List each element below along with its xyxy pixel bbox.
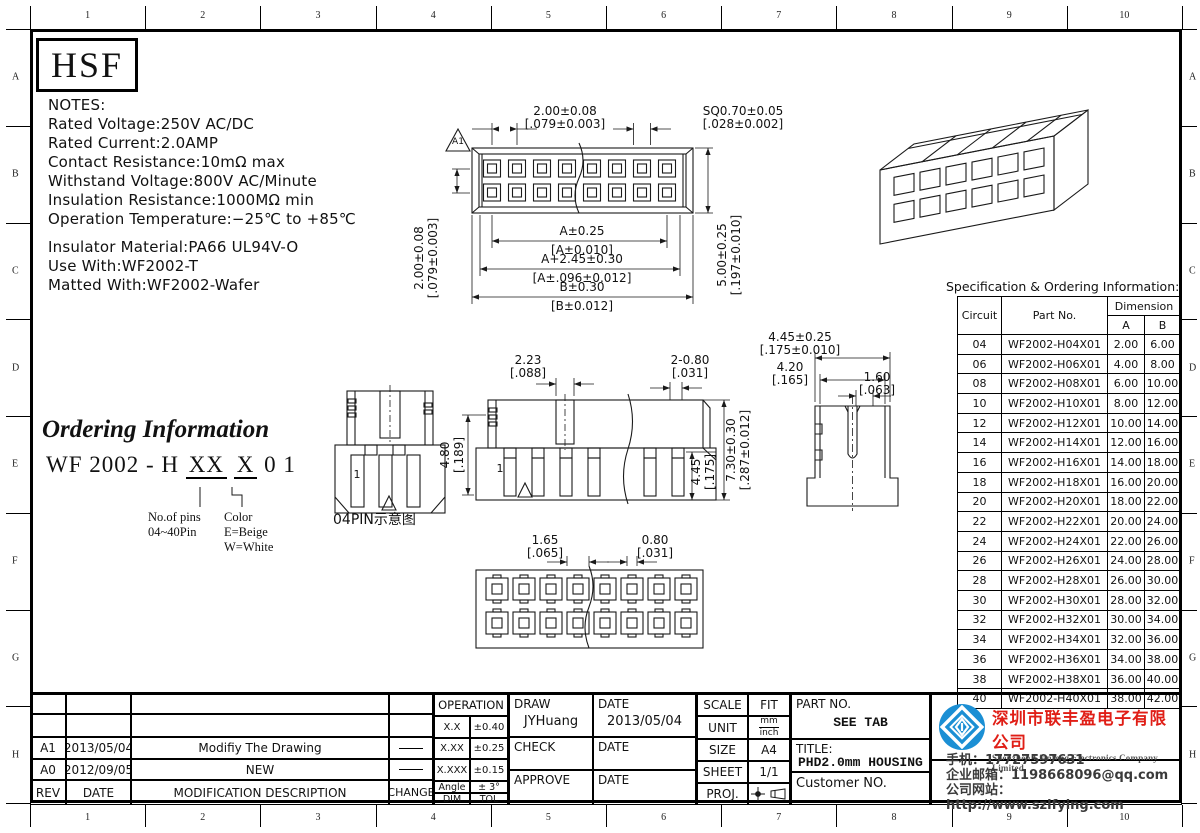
rev-a0: A0 — [30, 759, 66, 780]
border-tick — [606, 805, 607, 827]
spec-table-cell: 18 — [958, 472, 1002, 492]
border-tick — [6, 803, 30, 804]
spec-table-cell: 14.00 — [1108, 453, 1145, 473]
border-number-top: 7 — [776, 10, 781, 21]
notes-block: NOTES: Rated Voltage:250V AC/DCRated Cur… — [48, 96, 356, 295]
rev-header-date: DATE — [66, 780, 131, 805]
spec-table-cell: 16.00 — [1108, 472, 1145, 492]
spec-table-cell: WF2002-H38X01 — [1002, 669, 1108, 689]
spec-col-a: A — [1108, 316, 1145, 335]
spec-table-cell: WF2002-H32X01 — [1002, 610, 1108, 630]
company-website: 公司网站：http://www.szlfying.com — [946, 783, 1181, 813]
border-number-top: 10 — [1119, 10, 1129, 21]
spec-table-cell: 22.00 — [1108, 531, 1145, 551]
spec-table-row: 16WF2002-H16X0114.0018.00 — [958, 453, 1181, 473]
border-tick — [1182, 803, 1197, 804]
border-letter-right: A — [1189, 72, 1196, 83]
spec-table-row: 26WF2002-H26X0124.0028.00 — [958, 551, 1181, 571]
rev-a0-date: 2012/09/05 — [66, 759, 131, 780]
check-cell: CHECK — [508, 737, 593, 770]
spec-table-cell: 24.00 — [1145, 512, 1181, 532]
border-tick — [1182, 416, 1197, 417]
note-line: Withstand Voltage:800V AC/Minute — [48, 172, 356, 191]
border-tick — [1182, 513, 1197, 514]
spec-table-cell: 12.00 — [1145, 394, 1181, 414]
border-tick — [6, 513, 30, 514]
border-tick — [6, 416, 30, 417]
spec-table-cell: 26.00 — [1108, 571, 1145, 591]
spec-table-cell: WF2002-H06X01 — [1002, 354, 1108, 374]
proj-label: PROJ. — [696, 783, 748, 805]
border-number-bottom: 2 — [200, 812, 205, 823]
size-value: A4 — [748, 739, 790, 761]
spec-table-cell: 16 — [958, 453, 1002, 473]
spec-table-cell: 30.00 — [1145, 571, 1181, 591]
spec-table-cell: 8.00 — [1108, 394, 1145, 414]
border-number-bottom: 7 — [776, 812, 781, 823]
spec-table-cell: 06 — [958, 354, 1002, 374]
dim-side-2080: 2-0.80[.031] — [671, 354, 710, 380]
border-tick — [1182, 319, 1197, 320]
border-letter-left: B — [12, 169, 19, 180]
unit-value: mminch — [748, 716, 790, 739]
notes-lines: Rated Voltage:250V AC/DCRated Current:2.… — [48, 115, 356, 229]
tol-xxx: X.XX — [433, 738, 470, 759]
border-number-top: 2 — [200, 10, 205, 21]
spec-table-cell: 32.00 — [1108, 630, 1145, 650]
sheet-label: SHEET — [696, 761, 748, 783]
border-letter-left: H — [12, 749, 19, 760]
note-line: Insulation Resistance:1000MΩ min — [48, 191, 356, 210]
spec-table-row: 20WF2002-H20X0118.0022.00 — [958, 492, 1181, 512]
dim-front-row-pitch: 2.00±0.08[.079±0.003] — [412, 218, 440, 299]
caption-04pin: 04PIN示意图 — [333, 509, 416, 529]
spec-col-dimension: Dimension — [1108, 297, 1181, 316]
spec-table-cell: 26.00 — [1145, 531, 1181, 551]
border-tick — [1182, 223, 1197, 224]
tol-xxx-val: ±0.25 — [470, 738, 508, 759]
border-number-bottom: 3 — [316, 812, 321, 823]
spec-table-row: 12WF2002-H12X0110.0014.00 — [958, 413, 1181, 433]
tol-tol: TOL — [470, 793, 508, 805]
border-number-bottom: 9 — [1007, 812, 1012, 823]
border-tick — [491, 6, 492, 29]
spec-table-cell: 20.00 — [1108, 512, 1145, 532]
border-number-top: 8 — [892, 10, 897, 21]
check-date-cell: DATE — [593, 737, 696, 770]
spec-table-cell: 8.00 — [1145, 354, 1181, 374]
change-line — [399, 748, 423, 749]
spec-table-cell: WF2002-H18X01 — [1002, 472, 1108, 492]
spec-table-cell: 10 — [958, 394, 1002, 414]
border-tick — [491, 805, 492, 827]
drawing-sheet: 1122334455667788991010AABBCCDDEEFFGGHH H… — [0, 0, 1200, 833]
ordering-information-title: Ordering Information — [42, 416, 269, 444]
revision-flag: A1 — [452, 136, 464, 149]
title-cell: TITLE: PHD2.0mm HOUSING — [790, 739, 930, 772]
customer-cell: Customer NO. — [790, 772, 930, 805]
border-tick — [30, 6, 31, 29]
dim-end-420: 4.20[.165] — [772, 361, 808, 387]
border-number-bottom: 4 — [431, 812, 436, 823]
spec-table-cell: WF2002-H10X01 — [1002, 394, 1108, 414]
spec-table-cell: 26 — [958, 551, 1002, 571]
tol-xx: X.X — [433, 716, 470, 738]
border-letter-right: D — [1189, 362, 1196, 373]
rear-view-drawing — [458, 526, 723, 661]
draw-date-cell: DATE2013/05/04 — [593, 694, 696, 737]
spec-table-row: 36WF2002-H36X0134.0038.00 — [958, 650, 1181, 670]
spec-table-cell: 36.00 — [1108, 669, 1145, 689]
border-number-top: 3 — [316, 10, 321, 21]
spec-table-cell: 20 — [958, 492, 1002, 512]
spec-table-cell: 4.00 — [1108, 354, 1145, 374]
spec-table-cell: WF2002-H04X01 — [1002, 335, 1108, 355]
border-letter-left: G — [12, 652, 19, 663]
dim-side-223: 2.23[.088] — [510, 354, 546, 380]
dim-front-pitch: 2.00±0.08[.079±0.003] — [525, 105, 606, 131]
spec-table-cell: 20.00 — [1145, 472, 1181, 492]
border-tick — [30, 805, 31, 827]
spec-table-cell: WF2002-H36X01 — [1002, 650, 1108, 670]
rev-header: REV — [30, 780, 66, 805]
border-number-top: 5 — [546, 10, 551, 21]
spec-table-title: Specification & Ordering Information: — [946, 279, 1179, 294]
spec-table-cell: 22 — [958, 512, 1002, 532]
border-letter-right: C — [1189, 265, 1196, 276]
border-tick — [836, 805, 837, 827]
dim-rear-165: 1.65[.065] — [527, 534, 563, 560]
spec-table-cell: 34.00 — [1145, 610, 1181, 630]
ordering-color-note: ColorE=BeigeW=White — [224, 510, 273, 555]
spec-table-cell: 14 — [958, 433, 1002, 453]
border-tick — [6, 706, 30, 707]
tol-xxxx: X.XXX — [433, 759, 470, 781]
spec-col-part: Part No. — [1002, 297, 1108, 335]
border-letter-left: F — [12, 556, 18, 567]
border-tick — [1182, 706, 1197, 707]
spec-table-cell: 38 — [958, 669, 1002, 689]
spec-table-cell: 18.00 — [1108, 492, 1145, 512]
company-email: 企业邮箱：1198668096@qq.com — [946, 768, 1181, 783]
spec-table-cell: 36.00 — [1145, 630, 1181, 650]
spec-table-cell: 18.00 — [1145, 453, 1181, 473]
operation-title: OPERATION — [433, 694, 508, 716]
company-header: 深圳市联丰盈电子有限公司 Shenzhen Lianfeng Electroni… — [930, 694, 1182, 760]
notes-title: NOTES: — [48, 96, 356, 115]
spec-table-cell: 34.00 — [1108, 650, 1145, 670]
border-number-bottom: 6 — [661, 812, 666, 823]
rev-header-change: CHANGE — [389, 780, 433, 805]
unit-label: UNIT — [696, 716, 748, 739]
tol-dim: DIM — [433, 793, 470, 805]
size-label: SIZE — [696, 739, 748, 761]
spec-table-cell: WF2002-H28X01 — [1002, 571, 1108, 591]
spec-table-cell: 12 — [958, 413, 1002, 433]
border-letter-right: B — [1189, 169, 1196, 180]
tol-xx-val: ±0.40 — [470, 716, 508, 738]
spec-table-cell: WF2002-H26X01 — [1002, 551, 1108, 571]
border-number-top: 9 — [1007, 10, 1012, 21]
pin1-label-small: 1 — [354, 468, 361, 481]
spec-table: Circuit Part No. Dimension A B 04WF2002-… — [957, 296, 1181, 709]
spec-table-row: 14WF2002-H14X0112.0016.00 — [958, 433, 1181, 453]
note-line: Rated Voltage:250V AC/DC — [48, 115, 356, 134]
dim-rear-080: 0.80[.031] — [637, 534, 673, 560]
spec-table-cell: 28.00 — [1145, 551, 1181, 571]
partno-cell: PART NO. SEE TAB — [790, 694, 930, 739]
border-tick — [145, 805, 146, 827]
border-tick — [836, 6, 837, 29]
notes-lines-2: Insulator Material:PA66 UL94V-OUse With:… — [48, 238, 356, 295]
company-contact: 手机：17727597631 企业邮箱：1198668096@qq.com 公司… — [930, 760, 1182, 805]
border-number-bottom: 10 — [1119, 812, 1129, 823]
border-letter-left: C — [12, 265, 19, 276]
spec-table-row: 30WF2002-H30X0128.0032.00 — [958, 590, 1181, 610]
border-tick — [1182, 126, 1197, 127]
company-phone: 手机：17727597631 — [946, 753, 1181, 768]
note-line: Use With:WF2002-T — [48, 257, 356, 276]
rev-a1: A1 — [30, 737, 66, 759]
border-tick — [952, 6, 953, 29]
spec-table-row: 10WF2002-H10X018.0012.00 — [958, 394, 1181, 414]
dim-side-480: 4.80[.189] — [438, 437, 466, 473]
spec-table-cell: 30.00 — [1108, 610, 1145, 630]
spec-table-cell: 08 — [958, 374, 1002, 394]
spec-table-cell: 36 — [958, 650, 1002, 670]
rev-header-desc: MODIFICATION DESCRIPTION — [131, 780, 389, 805]
dim-end-445: 4.45±0.25[.175±0.010] — [760, 331, 841, 357]
border-letter-left: D — [12, 362, 19, 373]
rev-a1-desc: Modifiy The Drawing — [131, 737, 389, 759]
note-line: Rated Current:2.0AMP — [48, 134, 356, 153]
border-tick — [6, 29, 30, 30]
note-line: Operation Temperature:−25℃ to +85℃ — [48, 210, 356, 229]
spec-table-cell: 2.00 — [1108, 335, 1145, 355]
border-number-top: 4 — [431, 10, 436, 21]
spec-table-row: 24WF2002-H24X0122.0026.00 — [958, 531, 1181, 551]
spec-table-cell: 6.00 — [1145, 335, 1181, 355]
projection-symbol — [750, 786, 788, 802]
ordering-code: WF 2002 - H XX X 0 1 — [46, 452, 296, 478]
tol-xxxx-val: ±0.15 — [470, 759, 508, 781]
spec-col-circuit: Circuit — [958, 297, 1002, 335]
logo-hsf: HSF — [36, 38, 138, 92]
sheet-value: 1/1 — [748, 761, 790, 783]
approve-date-cell: DATE — [593, 770, 696, 805]
spec-table-row: 28WF2002-H28X0126.0030.00 — [958, 571, 1181, 591]
draw-name: JYHuang — [524, 714, 578, 729]
spec-table-cell: 10.00 — [1108, 413, 1145, 433]
scale-label: SCALE — [696, 694, 748, 716]
spec-table-cell: WF2002-H08X01 — [1002, 374, 1108, 394]
border-letter-right: F — [1189, 556, 1195, 567]
note-line: Contact Resistance:10mΩ max — [48, 153, 356, 172]
spec-table-cell: WF2002-H34X01 — [1002, 630, 1108, 650]
border-tick — [145, 6, 146, 29]
spec-table-cell: WF2002-H30X01 — [1002, 590, 1108, 610]
border-tick — [1182, 6, 1183, 29]
border-letter-left: E — [12, 459, 18, 470]
spec-table-cell: 32 — [958, 610, 1002, 630]
title-block: A1 2013/05/04 Modifiy The Drawing A0 201… — [30, 692, 1182, 803]
dim-front-square: SQ0.70±0.05[.028±0.002] — [703, 105, 784, 131]
border-tick — [6, 319, 30, 320]
spec-table-cell: WF2002-H12X01 — [1002, 413, 1108, 433]
scale-value: FIT — [748, 694, 790, 716]
border-tick — [1182, 610, 1197, 611]
border-tick — [721, 805, 722, 827]
spec-table-cell: 30 — [958, 590, 1002, 610]
spec-table-row: 08WF2002-H08X016.0010.00 — [958, 374, 1181, 394]
change-line — [399, 769, 423, 770]
dim-side-445: 4.45[.175] — [689, 454, 717, 490]
title-value: PHD2.0mm HOUSING — [798, 755, 923, 770]
border-tick — [721, 6, 722, 29]
border-number-bottom: 8 — [892, 812, 897, 823]
approve-cell: APPROVE — [508, 770, 593, 805]
border-tick — [260, 805, 261, 827]
border-tick — [6, 610, 30, 611]
rev-a0-desc: NEW — [131, 759, 389, 780]
border-number-top: 1 — [85, 10, 90, 21]
spec-table-cell: 24.00 — [1108, 551, 1145, 571]
ordering-code-pins: XX — [186, 452, 227, 479]
pin1-label-large: 1 — [497, 462, 504, 475]
rev-a1-date: 2013/05/04 — [66, 737, 131, 759]
spec-table-cell: 22.00 — [1145, 492, 1181, 512]
border-tick — [6, 126, 30, 127]
spec-table-cell: 28.00 — [1108, 590, 1145, 610]
spec-table-cell: WF2002-H24X01 — [1002, 531, 1108, 551]
side-view-large-drawing — [438, 352, 760, 520]
spec-table-cell: 12.00 — [1108, 433, 1145, 453]
border-tick — [260, 6, 261, 29]
spec-table-row: 32WF2002-H32X0130.0034.00 — [958, 610, 1181, 630]
ordering-code-color: X — [234, 452, 258, 479]
border-number-bottom: 1 — [85, 812, 90, 823]
border-tick — [376, 805, 377, 827]
tol-angle: Angle — [433, 781, 470, 793]
spec-table-cell: 6.00 — [1108, 374, 1145, 394]
border-letter-right: H — [1189, 749, 1196, 760]
spec-table-cell: 32.00 — [1145, 590, 1181, 610]
spec-table-cell: WF2002-H16X01 — [1002, 453, 1108, 473]
isometric-view-drawing — [862, 92, 1092, 250]
draw-date: 2013/05/04 — [607, 714, 682, 729]
note-line: Matted With:WF2002-Wafer — [48, 276, 356, 295]
border-tick — [376, 6, 377, 29]
border-letter-right: G — [1189, 652, 1196, 663]
tol-angle-val: ± 3° — [470, 781, 508, 793]
spec-table-cell: 28 — [958, 571, 1002, 591]
dim-front-height: 5.00±0.25[.197±0.010] — [715, 215, 743, 296]
spec-table-cell: 16.00 — [1145, 433, 1181, 453]
logo-text: HSF — [51, 44, 123, 86]
spec-table-row: 18WF2002-H18X0116.0020.00 — [958, 472, 1181, 492]
border-number-bottom: 5 — [546, 812, 551, 823]
spec-table-row: 06WF2002-H06X014.008.00 — [958, 354, 1181, 374]
side-view-04pin-drawing — [325, 383, 455, 523]
spec-table-cell: WF2002-H14X01 — [1002, 433, 1108, 453]
spec-table-cell: 04 — [958, 335, 1002, 355]
spec-table-cell: WF2002-H20X01 — [1002, 492, 1108, 512]
spec-col-b: B — [1145, 316, 1181, 335]
spec-table-cell: 10.00 — [1145, 374, 1181, 394]
border-tick — [1182, 29, 1197, 30]
border-tick — [1182, 805, 1183, 827]
dim-front-b: B±0.30[B±0.012] — [551, 281, 613, 313]
border-letter-left: A — [12, 72, 19, 83]
company-name-cn: 深圳市联丰盈电子有限公司 — [992, 705, 1181, 753]
note-line: Insulator Material:PA66 UL94V-O — [48, 238, 356, 257]
spec-table-row: 38WF2002-H38X0136.0040.00 — [958, 669, 1181, 689]
company-logo — [938, 701, 986, 753]
ordering-pins-note: No.of pins04~40Pin — [148, 510, 201, 540]
spec-table-row: 22WF2002-H22X0120.0024.00 — [958, 512, 1181, 532]
spec-table-cell: 38.00 — [1145, 650, 1181, 670]
border-number-top: 6 — [661, 10, 666, 21]
spec-table-row: 34WF2002-H34X0132.0036.00 — [958, 630, 1181, 650]
spec-table-row: 04WF2002-H04X012.006.00 — [958, 335, 1181, 355]
border-tick — [1067, 6, 1068, 29]
spec-table-body: 04WF2002-H04X012.006.0006WF2002-H06X014.… — [958, 335, 1181, 709]
proj-value — [748, 783, 790, 805]
dim-side-730: 7.30±0.30[.287±0.012] — [724, 410, 752, 491]
spec-table-cell: 40.00 — [1145, 669, 1181, 689]
dim-end-160: 1.60[.063] — [859, 371, 895, 397]
border-tick — [606, 6, 607, 29]
spec-table-cell: 24 — [958, 531, 1002, 551]
ordering-leader-lines — [150, 487, 290, 509]
draw-cell: DRAWJYHuang — [508, 694, 593, 737]
border-tick — [6, 223, 30, 224]
border-letter-right: E — [1189, 459, 1195, 470]
partno-value: SEE TAB — [833, 715, 888, 730]
spec-table-cell: 14.00 — [1145, 413, 1181, 433]
spec-table-cell: WF2002-H22X01 — [1002, 512, 1108, 532]
spec-table-cell: 34 — [958, 630, 1002, 650]
